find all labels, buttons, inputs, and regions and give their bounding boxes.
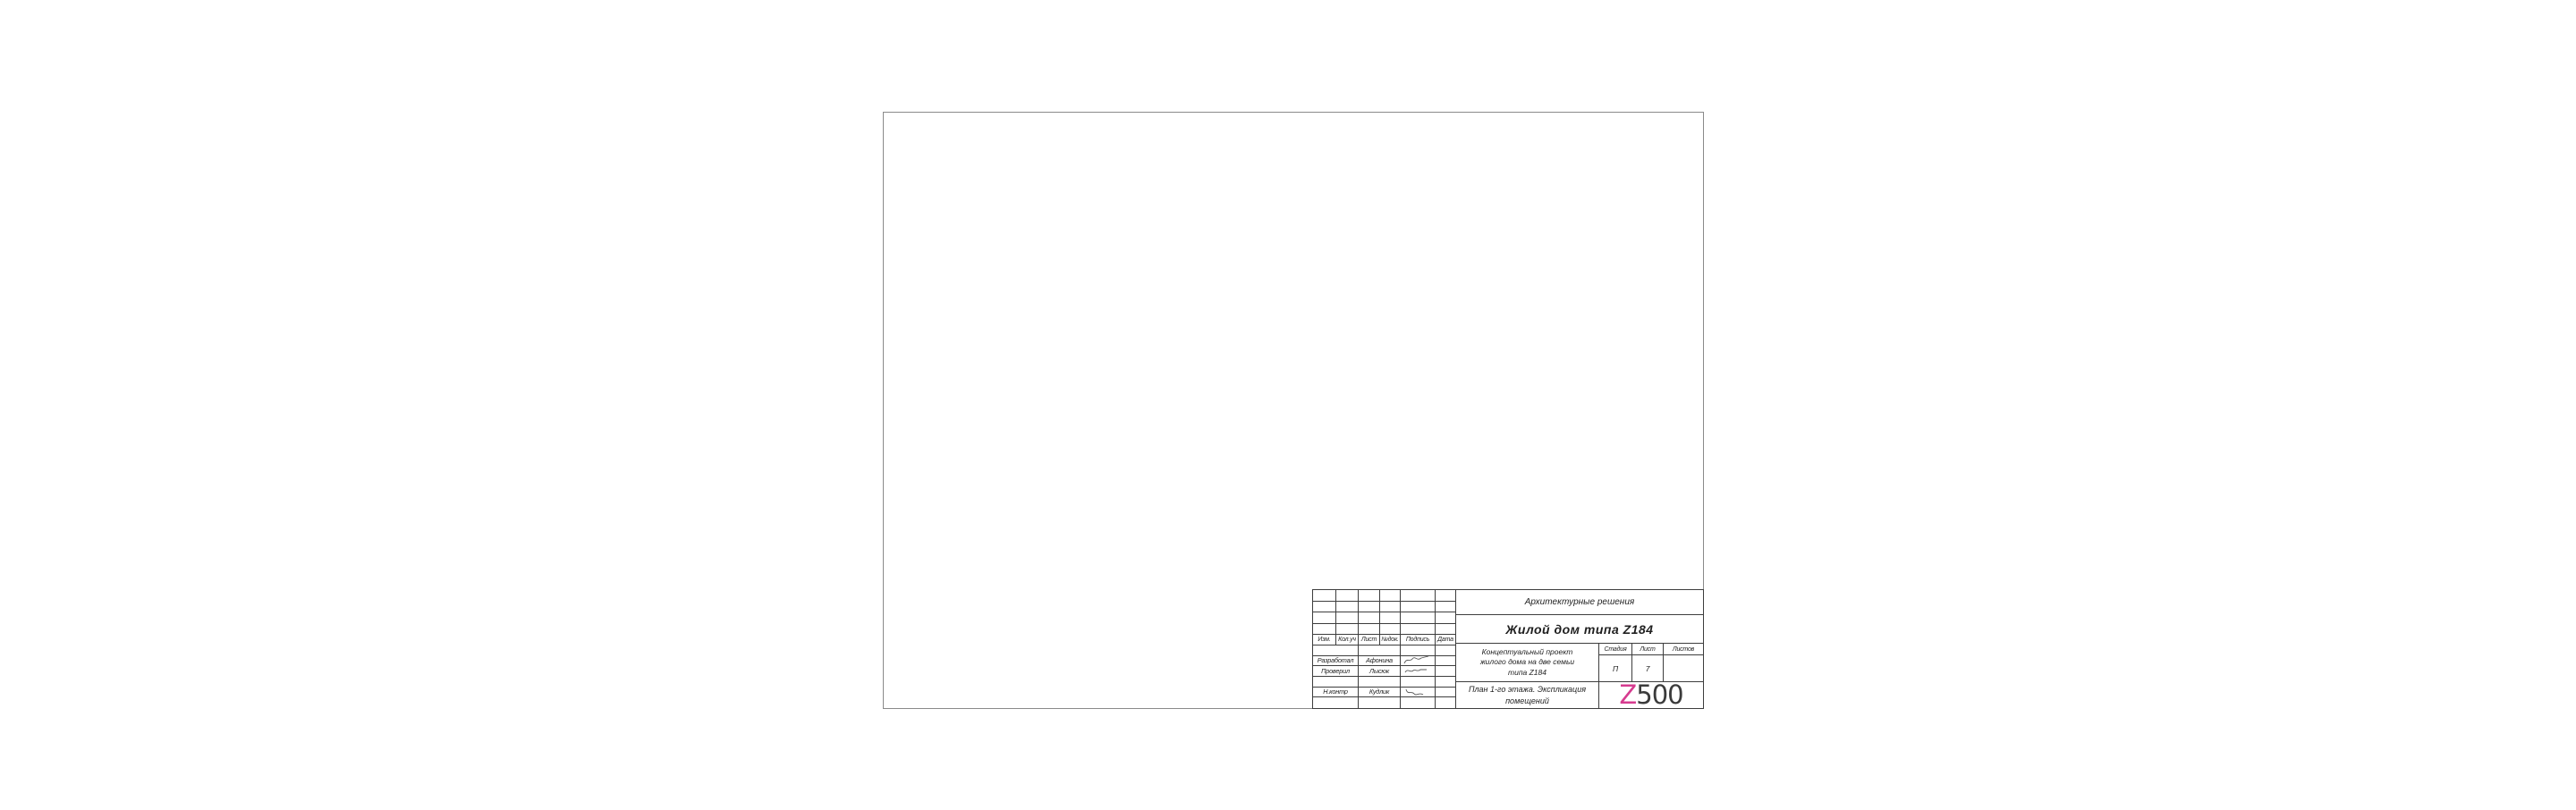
discipline-title: Архитектурные решения xyxy=(1456,590,1703,615)
stage-value: П xyxy=(1599,655,1632,681)
staff-row-cell xyxy=(1401,697,1436,708)
staff-name-developer: Афонина xyxy=(1359,656,1401,667)
staff-row-cell xyxy=(1359,645,1401,656)
sheet-number-label: Лист xyxy=(1632,644,1664,655)
sheets-total-label: Листов xyxy=(1664,644,1703,655)
stage-list-grid: Стадия Лист Листов П 7 xyxy=(1599,644,1703,681)
object-title: Жилой дом типа Z184 xyxy=(1456,615,1703,644)
project-description-line: типа Z184 xyxy=(1508,668,1546,678)
staff-role-checker: Проверил xyxy=(1313,666,1359,677)
revision-header-list: Лист xyxy=(1359,635,1380,645)
project-description-line: Концептуальный проект xyxy=(1482,647,1573,657)
title-block: Изм. Кол.уч Лист №док. Подпись Дата Разр… xyxy=(1312,589,1704,709)
revision-cell xyxy=(1359,602,1380,613)
revision-cell xyxy=(1401,590,1436,602)
revision-cell xyxy=(1336,612,1359,624)
revision-cell xyxy=(1380,602,1401,613)
staff-signature-checker xyxy=(1401,666,1436,677)
revision-cell xyxy=(1436,624,1455,636)
staff-row-cell xyxy=(1313,677,1359,688)
revision-header-data: Дата xyxy=(1436,635,1455,645)
revision-staff-table: Изм. Кол.уч Лист №док. Подпись Дата Разр… xyxy=(1313,590,1456,708)
z500-logo-500: 500 xyxy=(1636,679,1682,710)
staff-row-cell xyxy=(1436,697,1455,708)
staff-role-developer: Разработал xyxy=(1313,656,1359,667)
staff-signature-norm-control xyxy=(1401,688,1436,698)
staff-row-cell xyxy=(1436,677,1455,688)
sheet-title-line: помещений xyxy=(1505,696,1549,706)
revision-cell xyxy=(1380,624,1401,636)
sheets-total-value xyxy=(1664,655,1703,681)
staff-row-cell xyxy=(1359,697,1401,708)
revision-cell xyxy=(1336,590,1359,602)
revision-cell xyxy=(1380,612,1401,624)
staff-signature-developer xyxy=(1401,656,1436,667)
revision-cell xyxy=(1401,612,1436,624)
revision-cell xyxy=(1313,590,1336,602)
revision-cell xyxy=(1313,602,1336,613)
sheet-title-line: План 1-го этажа. Экспликация xyxy=(1469,684,1586,695)
drawing-sheet: Изм. Кол.уч Лист №док. Подпись Дата Разр… xyxy=(883,112,1704,709)
revision-cell xyxy=(1401,624,1436,636)
page-background: Изм. Кол.уч Лист №док. Подпись Дата Разр… xyxy=(0,0,2576,810)
staff-row-cell xyxy=(1401,677,1436,688)
revision-cell xyxy=(1359,624,1380,636)
revision-cell xyxy=(1401,602,1436,613)
staff-date-developer xyxy=(1436,656,1455,667)
z500-logo: Z500 xyxy=(1619,682,1682,708)
revision-header-koluch: Кол.уч xyxy=(1336,635,1359,645)
revision-cell xyxy=(1359,590,1380,602)
revision-cell xyxy=(1336,624,1359,636)
company-logo-cell: Z500 xyxy=(1599,682,1703,708)
revision-cell xyxy=(1380,590,1401,602)
staff-name-norm-control: Кудлик xyxy=(1359,688,1401,698)
staff-name-checker: Лысюк xyxy=(1359,666,1401,677)
staff-row-cell xyxy=(1436,645,1455,656)
revision-cell xyxy=(1436,602,1455,613)
project-info-section: Архитектурные решения Жилой дом типа Z18… xyxy=(1456,590,1703,708)
staff-row-cell xyxy=(1359,677,1401,688)
sheet-title: План 1-го этажа. Экспликация помещений xyxy=(1456,682,1599,708)
stage-label: Стадия xyxy=(1599,644,1632,655)
project-description-line: жилого дома на две семьи xyxy=(1480,657,1574,667)
revision-cell xyxy=(1313,612,1336,624)
revision-cell xyxy=(1436,590,1455,602)
revision-cell xyxy=(1336,602,1359,613)
staff-date-checker xyxy=(1436,666,1455,677)
revision-header-izm: Изм. xyxy=(1313,635,1336,645)
staff-role-norm-control: Н.контр xyxy=(1313,688,1359,698)
revision-cell xyxy=(1436,612,1455,624)
revision-cell xyxy=(1359,612,1380,624)
project-description: Концептуальный проект жилого дома на две… xyxy=(1456,644,1599,681)
staff-row-cell xyxy=(1313,645,1359,656)
revision-header-podpis: Подпись xyxy=(1401,635,1436,645)
staff-date-norm-control xyxy=(1436,688,1455,698)
z500-logo-z: Z xyxy=(1619,679,1636,710)
project-description-row: Концептуальный проект жилого дома на две… xyxy=(1456,644,1703,682)
revision-header-ndok: №док. xyxy=(1380,635,1401,645)
sheet-title-row: План 1-го этажа. Экспликация помещений Z… xyxy=(1456,682,1703,708)
sheet-number-value: 7 xyxy=(1632,655,1664,681)
staff-row-cell xyxy=(1401,645,1436,656)
revision-cell xyxy=(1313,624,1336,636)
staff-row-cell xyxy=(1313,697,1359,708)
